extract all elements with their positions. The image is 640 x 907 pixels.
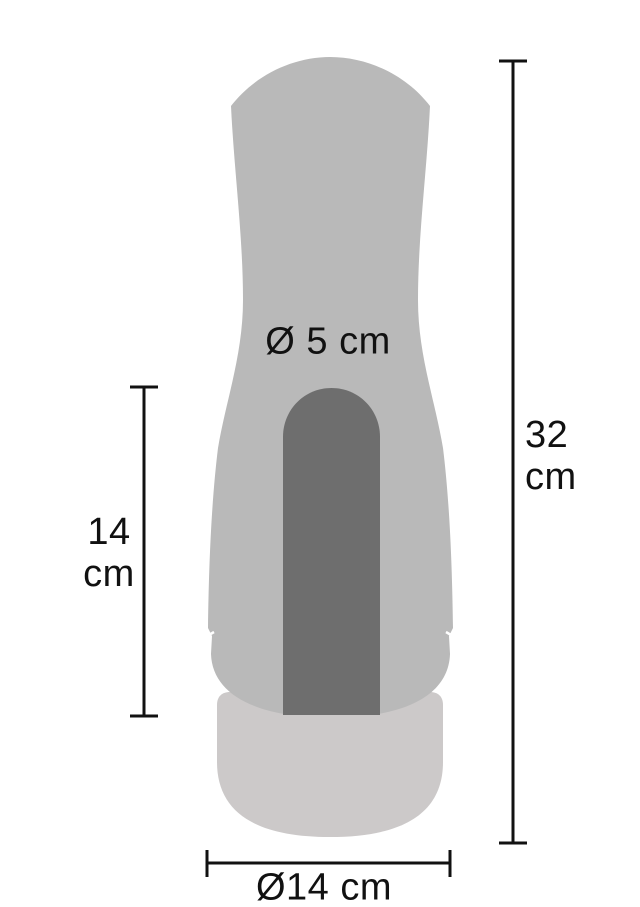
label-opening-diameter: Ø 5 cm <box>265 321 390 364</box>
label-base-diameter: Ø14 cm <box>256 867 392 907</box>
label-total-height: 32 cm <box>525 414 577 498</box>
dimension-diagram: Ø 5 cm 32 cm 14 cm Ø14 cm <box>0 0 640 907</box>
label-insertion-depth-value: 14 <box>83 511 135 553</box>
dimension-line-total-height <box>499 61 527 843</box>
label-insertion-depth-unit: cm <box>83 553 135 595</box>
label-total-height-unit: cm <box>525 456 577 498</box>
product-opening-slot <box>283 388 380 715</box>
label-total-height-value: 32 <box>525 414 577 456</box>
label-insertion-depth: 14 cm <box>83 511 135 595</box>
